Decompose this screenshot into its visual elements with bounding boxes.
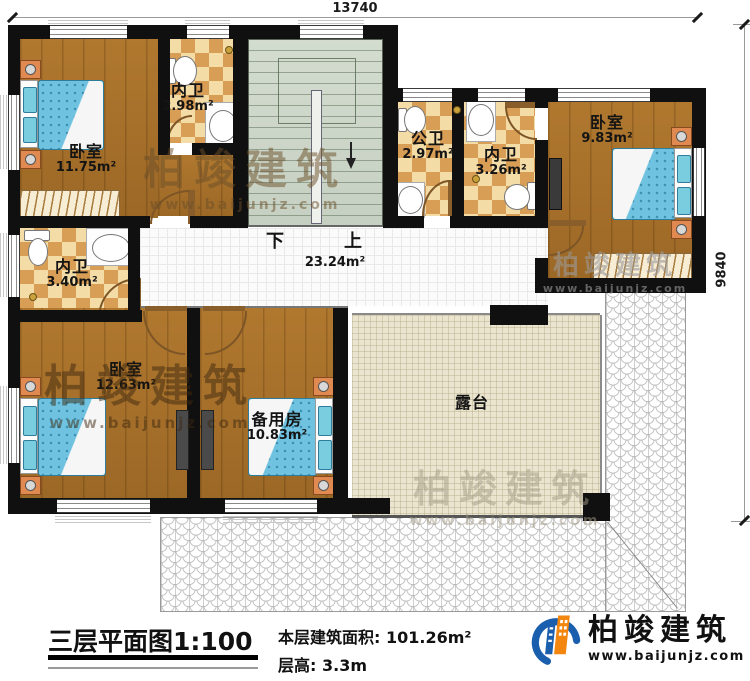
- label-spare-room: 备用房 10.83m²: [226, 411, 328, 443]
- room-name: 内卫: [466, 146, 536, 164]
- nightstand: [313, 377, 334, 396]
- wall-stairs-left: [233, 25, 248, 228]
- label-ensuite-tr: 内卫 3.26m²: [466, 146, 536, 178]
- window-bottom-1: [57, 499, 150, 513]
- brand-logo: 柏竣建筑 www.baijunjz.com: [528, 610, 745, 670]
- window-top-5: [478, 88, 525, 102]
- room-name: 卧室: [76, 361, 176, 379]
- pillow-icon: [23, 87, 37, 113]
- wall-bath-block-bottom-2: [450, 216, 548, 228]
- roof-tiles-bottom: [160, 517, 606, 612]
- floor-height-label: 层高:: [278, 656, 316, 675]
- wardrobe: [20, 190, 120, 218]
- label-terrace: 露台: [420, 394, 524, 412]
- bed-headboard: [20, 80, 38, 148]
- room-name: 备用房: [226, 411, 328, 429]
- label-public-bath: 公卫 2.97m²: [398, 130, 458, 162]
- wall-bedroom-tl-bottom-1: [8, 216, 150, 228]
- wall-bedroom-tr-bottom: [535, 278, 706, 293]
- floor-height-line: 层高: 3.3m: [278, 652, 367, 676]
- wall-ensuite-tl-bottom-1: [158, 143, 167, 155]
- room-name: 内卫: [36, 258, 108, 276]
- title-underline: [48, 655, 258, 669]
- wall-ensuite-ml-right: [128, 228, 140, 320]
- roof-tiles-right: [605, 290, 686, 612]
- toilet-bowl-icon: [504, 184, 530, 210]
- label-bedroom-bl: 卧室 12.63m²: [76, 361, 176, 393]
- room-area: 9.83m²: [558, 132, 656, 147]
- floor-area-line: 本层建筑面积: 101.26m²: [278, 624, 471, 648]
- plan-title: 三层平面图1:100: [48, 622, 253, 658]
- bed-headboard: [674, 148, 692, 218]
- window-sill-left-2: [0, 233, 8, 297]
- stairs-arrow-head: [346, 158, 356, 169]
- dimension-line-right: [744, 25, 745, 522]
- wall-bedroom-tl-bottom-2: [190, 216, 233, 228]
- wall-ensuite-tl-bottom-2: [192, 143, 233, 155]
- room-area: 12.63m²: [76, 379, 176, 394]
- wall-bedroom-tr-left-1: [535, 102, 548, 108]
- wall-hall-south-stub: [490, 305, 548, 325]
- window-sill-bottom-2: [223, 514, 318, 523]
- room-name: 卧室: [558, 114, 656, 132]
- label-bedroom-tl: 卧室 11.75m²: [36, 143, 136, 175]
- bed-headboard: [20, 398, 38, 474]
- lamp-icon: [318, 381, 329, 392]
- terrace-bottom-edge: [352, 515, 602, 518]
- window-left-2: [8, 235, 20, 297]
- lamp-icon: [25, 480, 36, 491]
- label-hall-area: 23.24m²: [280, 256, 390, 271]
- window-top-6: [558, 88, 650, 102]
- wall-bath-block-bottom-1: [383, 216, 424, 228]
- bed-mattress: [612, 148, 676, 220]
- room-name: 公卫: [398, 130, 458, 148]
- bed-blanket: [613, 149, 675, 219]
- nightstand: [20, 476, 41, 495]
- bed-blanket: [39, 399, 105, 475]
- pillow-icon: [318, 440, 332, 470]
- window-sill-bottom-1: [55, 514, 151, 523]
- nightstand: [20, 377, 41, 396]
- floor-height-value: 3.3m: [322, 656, 367, 675]
- lamp-icon: [318, 480, 329, 491]
- wall-spare-right: [333, 308, 348, 498]
- valve-icon: [29, 293, 37, 301]
- floor-plan: 卧室 11.75m² 内卫 2.98m² 公卫 2.97m² 内卫 3.26m²…: [0, 0, 750, 681]
- room-area: 11.75m²: [36, 161, 136, 176]
- floor-area-value: 101.26m²: [386, 628, 471, 647]
- bed-mattress: [38, 80, 104, 150]
- lamp-icon: [25, 64, 36, 75]
- window-bottom-2: [225, 499, 317, 513]
- nightstand: [313, 476, 334, 495]
- nightstand: [20, 60, 41, 79]
- tv-icon: [549, 158, 562, 210]
- window-left-1: [8, 95, 20, 170]
- chimney-block: [583, 493, 610, 521]
- closet-door: [201, 410, 214, 470]
- window-top-2: [187, 25, 229, 39]
- wall-bedroom-tr-left-3: [535, 258, 548, 293]
- label-bedroom-tr: 卧室 9.83m²: [558, 114, 656, 146]
- dimension-line-top: [12, 17, 698, 18]
- lamp-icon: [676, 224, 687, 235]
- pillow-icon: [677, 187, 691, 215]
- label-ensuite-ml: 内卫 3.40m²: [36, 258, 108, 290]
- pillow-icon: [677, 155, 691, 183]
- wall-ensuite-ml-bottom: [8, 310, 142, 322]
- stairs-up-label: 上: [344, 227, 362, 253]
- lamp-icon: [676, 131, 687, 142]
- brand-website: www.baijunjz.com: [588, 649, 745, 664]
- floor-area-label: 本层建筑面积:: [278, 628, 380, 647]
- window-left-3: [8, 388, 20, 463]
- window-top-3: [300, 25, 363, 39]
- terrace-top-edge: [352, 313, 600, 315]
- wardrobe: [593, 253, 692, 279]
- window-sill-left-1: [0, 95, 8, 169]
- room-area: 3.40m²: [36, 276, 108, 291]
- valve-icon: [453, 106, 461, 114]
- nightstand: [671, 220, 692, 239]
- room-area: 3.26m²: [466, 164, 536, 179]
- room-name: 内卫: [156, 82, 220, 100]
- sink-icon: [468, 104, 494, 136]
- room-terrace: [352, 315, 600, 515]
- stairs-arrow-stem: [350, 142, 352, 158]
- stairs-down-label: 下: [266, 227, 284, 253]
- room-area: 2.98m²: [156, 100, 220, 115]
- wall-stairs-right: [383, 39, 398, 228]
- closet-door: [176, 410, 189, 470]
- window-top-1: [50, 25, 127, 39]
- valve-icon: [225, 46, 233, 54]
- dimension-width: 13740: [320, 1, 390, 16]
- bed-blanket: [39, 81, 103, 149]
- dimension-tick: [692, 12, 703, 23]
- brand-logo-icon: [528, 610, 582, 670]
- pillow-icon: [23, 117, 37, 143]
- room-name: 露台: [420, 394, 524, 412]
- pillow-icon: [23, 406, 37, 436]
- room-area: 10.83m²: [226, 429, 328, 444]
- terrace-right-edge: [600, 315, 602, 517]
- bed-mattress: [38, 398, 106, 476]
- window-sill-left-3: [0, 386, 8, 464]
- label-ensuite-tl: 内卫 2.98m²: [156, 82, 220, 114]
- room-area: 2.97m²: [398, 148, 458, 163]
- lamp-icon: [25, 381, 36, 392]
- brand-name: 柏竣建筑: [588, 616, 732, 646]
- window-top-4: [403, 88, 452, 102]
- window-right-1: [693, 148, 705, 216]
- stairs-center-rail: [311, 90, 322, 224]
- dimension-height: 9840: [715, 245, 730, 295]
- room-area: 23.24m²: [280, 256, 390, 271]
- wall-bedroom-tr-left-2: [535, 140, 548, 222]
- nightstand: [671, 127, 692, 146]
- pillow-icon: [23, 440, 37, 470]
- sink-icon: [398, 186, 423, 214]
- lamp-icon: [25, 154, 36, 165]
- room-name: 卧室: [36, 143, 136, 161]
